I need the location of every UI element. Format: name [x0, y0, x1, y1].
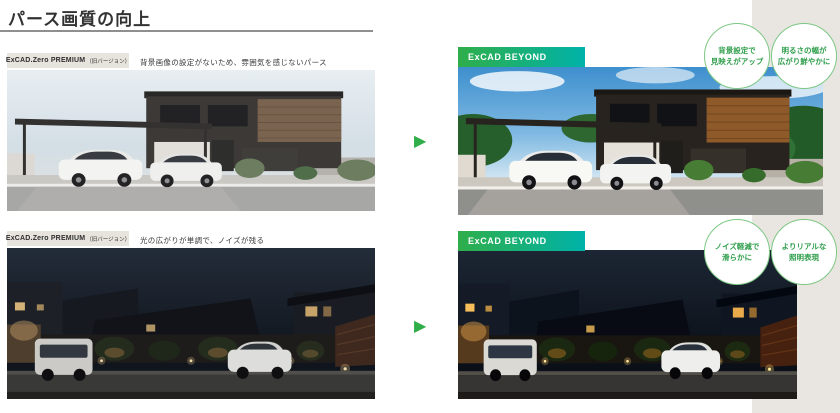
benefit-badge: ノイズ軽減で 滑らかに — [704, 219, 770, 285]
old-version-label-daytime: ExCAD.Zero PREMIUM （旧バージョン） — [7, 53, 129, 68]
old-caption-night: 光の広がりが単調で、ノイズが残る — [140, 235, 264, 246]
new-version-header-daytime: ExCAD BEYOND — [458, 47, 585, 67]
page-title: パース画質の向上 — [8, 5, 151, 30]
render-old-night — [7, 248, 375, 399]
title-underline — [0, 30, 373, 32]
benefit-badge: 背景設定で 見映えがアップ — [704, 23, 770, 89]
benefit-badge: よりリアルな 照明表現 — [771, 219, 837, 285]
old-version-label-night: ExCAD.Zero PREMIUM （旧バージョン） — [7, 231, 129, 246]
benefit-badge: 明るさの幅が 広がり鮮やかに — [771, 23, 837, 89]
old-caption-daytime: 背景画像の設定がないため、雰囲気を感じないパース — [140, 57, 327, 68]
render-new-daytime — [458, 67, 823, 215]
arrow-right-icon: ▶ — [414, 319, 426, 335]
new-version-header-night: ExCAD BEYOND — [458, 231, 585, 251]
arrow-right-icon: ▶ — [414, 134, 426, 150]
old-version-tag: （旧バージョン） — [86, 235, 130, 243]
brochure-page: パース画質の向上 ExCAD.Zero PREMIUM （旧バージョン） 背景画… — [0, 0, 840, 413]
render-old-daytime — [7, 70, 375, 211]
old-product-name: ExCAD.Zero PREMIUM — [6, 235, 85, 242]
old-version-tag: （旧バージョン） — [86, 57, 130, 65]
old-product-name: ExCAD.Zero PREMIUM — [6, 57, 85, 64]
